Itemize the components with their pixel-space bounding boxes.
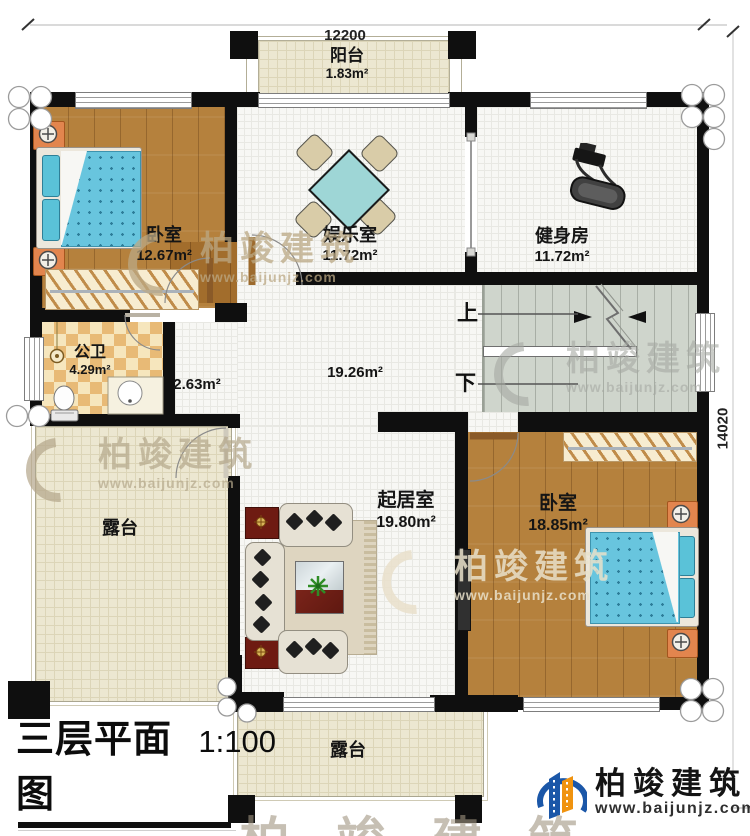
- bedroom2-threshold: [468, 412, 518, 432]
- dimension-right: 14020: [715, 394, 732, 464]
- brand-url: www.baijunjz.com: [595, 800, 750, 818]
- nightstand: [667, 629, 698, 658]
- room-name: 卧室: [136, 225, 192, 247]
- wall: [465, 92, 477, 137]
- room-area: 11.72m²: [534, 248, 589, 266]
- cushion: [321, 641, 339, 659]
- wall: [430, 695, 518, 712]
- nightstand: [667, 501, 698, 529]
- room-name: 卧室: [528, 493, 588, 516]
- cushion: [304, 637, 322, 655]
- cushion: [254, 593, 272, 611]
- bed: [585, 527, 699, 627]
- terrace-left-floor: [35, 426, 232, 702]
- nightstand: [33, 121, 65, 150]
- wall: [296, 272, 709, 285]
- room-area: 4.29m²: [69, 362, 110, 378]
- cushion: [285, 512, 303, 530]
- column: [455, 795, 482, 823]
- side-table: [245, 507, 279, 539]
- wall: [378, 412, 468, 432]
- bed-sheet: [642, 532, 678, 622]
- wall: [30, 414, 237, 426]
- title-underline: [18, 822, 231, 828]
- cushion: [252, 615, 270, 633]
- pillow: [678, 578, 695, 618]
- room-area: 1.83m²: [326, 66, 369, 82]
- floor-plan: 12200 14020 阳台 1.83m² 卧室 12.67m² 娱乐室 11.…: [0, 0, 750, 836]
- hall-floor: [237, 285, 455, 426]
- tv: [457, 549, 471, 631]
- cushion: [324, 513, 342, 531]
- area-label-hall: 19.26m²: [327, 364, 383, 382]
- coffee-table-glass: [296, 562, 343, 590]
- wall: [30, 308, 130, 322]
- column: [230, 31, 258, 59]
- plan-scale: 1:100: [198, 724, 276, 760]
- cushion: [305, 509, 323, 527]
- coffee-table-wood: [296, 590, 343, 613]
- cushion: [253, 548, 271, 566]
- wall: [658, 697, 709, 710]
- wall: [215, 303, 247, 322]
- gym-window: [530, 92, 647, 109]
- cushion: [285, 640, 303, 658]
- area-label-corridor: 2.63m²: [173, 376, 221, 394]
- wall: [225, 92, 237, 242]
- wall: [645, 92, 709, 107]
- column: [448, 31, 476, 59]
- room-area: 18.85m²: [528, 516, 588, 535]
- room-name: 娱乐室: [322, 225, 377, 247]
- bedroom2-window: [523, 697, 660, 712]
- wardrobe: [563, 432, 697, 462]
- room-label-bedroom2: 卧室 18.85m²: [528, 493, 588, 535]
- room-label-terrace-left: 露台: [102, 518, 138, 540]
- side-table: [245, 637, 279, 669]
- brand-logo: 柏竣建筑 www.baijunjz.com: [533, 763, 750, 823]
- living-sliding-door: [283, 697, 435, 712]
- bedroom1-window: [75, 92, 192, 109]
- dimension-top: 12200: [300, 27, 390, 44]
- wall: [228, 414, 240, 428]
- room-name: 公卫: [69, 343, 110, 362]
- room-label-terrace-bottom: 露台: [330, 740, 366, 762]
- room-name: 起居室: [376, 490, 436, 513]
- stairs-down-label: 下: [455, 367, 476, 397]
- pillow: [678, 536, 695, 576]
- room-area: 19.80m²: [376, 513, 436, 532]
- sofa-bottom: [278, 630, 348, 674]
- plan-title: 三层平面图: [16, 708, 194, 818]
- sofa-left: [245, 542, 285, 641]
- room-label-bathroom: 公卫 4.29m²: [69, 343, 110, 378]
- room-area: 19.26m²: [327, 364, 383, 382]
- wall: [448, 92, 530, 107]
- room-area: 12.67m²: [136, 247, 192, 265]
- balcony-sliding-door: [258, 93, 450, 108]
- wardrobe: [45, 269, 199, 310]
- corridor-floor: [175, 322, 237, 414]
- room-label-bedroom1: 卧室 12.67m²: [136, 225, 192, 265]
- wall: [163, 322, 175, 414]
- wardrobe-rail: [568, 447, 692, 450]
- room-name: 健身房: [534, 226, 589, 248]
- bathroom-window: [24, 337, 44, 401]
- sofa-top: [279, 503, 353, 547]
- stair-railing: [483, 346, 637, 357]
- room-label-living: 起居室 19.80m²: [376, 490, 436, 532]
- title-thin-line: [18, 830, 236, 831]
- wall: [228, 476, 240, 657]
- pillow: [42, 155, 60, 197]
- bed-sheet: [61, 151, 97, 245]
- cushion: [251, 570, 269, 588]
- passage-floor: [237, 272, 296, 285]
- room-area: 11.72m²: [322, 247, 377, 265]
- room-name: 阳台: [326, 46, 369, 66]
- treadmill: [545, 143, 635, 223]
- wall: [518, 412, 709, 432]
- room-label-balcony: 阳台 1.83m²: [326, 46, 369, 83]
- room-area: 2.63m²: [173, 376, 221, 394]
- brand-logo-icon: [533, 763, 587, 823]
- stairs-up-label: 上: [457, 297, 478, 327]
- brand-name: 柏竣建筑: [595, 768, 750, 801]
- room-label-gym: 健身房 11.72m²: [534, 226, 589, 266]
- pillow: [42, 199, 60, 241]
- coffee-table: [295, 561, 344, 614]
- wardrobe-rail: [50, 290, 194, 293]
- room-name: 露台: [102, 518, 138, 540]
- room-label-entertainment: 娱乐室 11.72m²: [322, 225, 377, 265]
- room-name: 露台: [330, 740, 366, 762]
- stairwell-window: [695, 313, 715, 392]
- bed: [36, 147, 142, 249]
- title-block: 三层平面图 1:100 本层建筑面积: 116.22m² 层高: 3.3m: [16, 708, 276, 836]
- wall: [30, 92, 75, 107]
- wall: [228, 655, 242, 712]
